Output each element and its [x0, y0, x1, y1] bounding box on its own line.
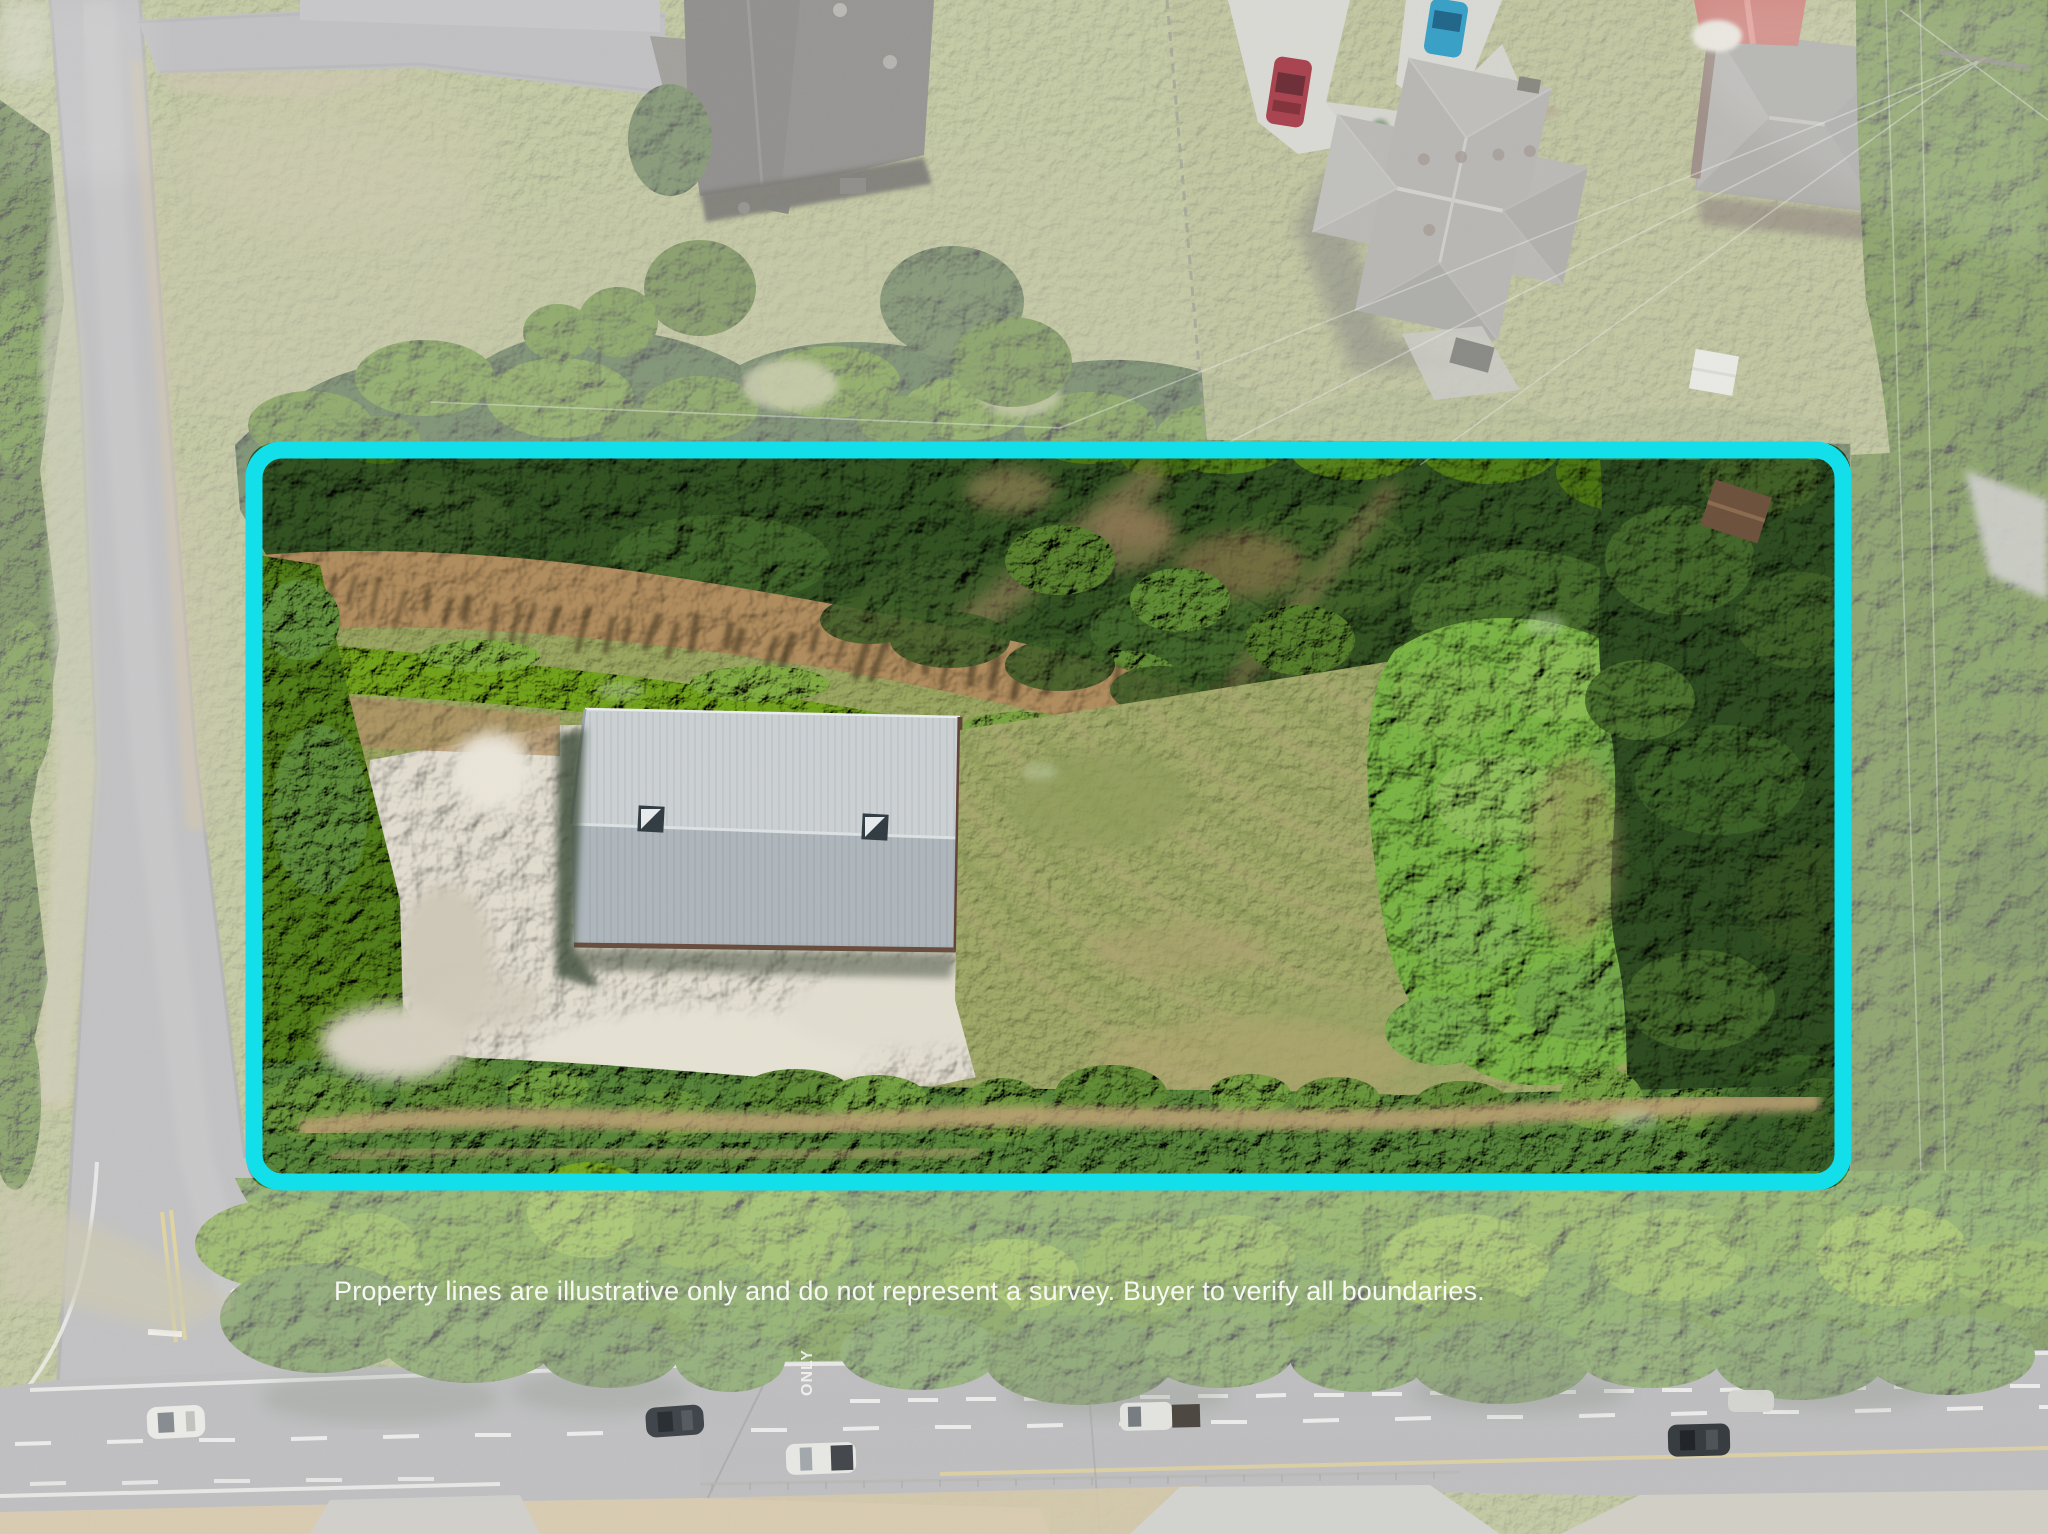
svg-text:Property lines are illustrativ: Property lines are illustrative only and… — [334, 1276, 1485, 1306]
